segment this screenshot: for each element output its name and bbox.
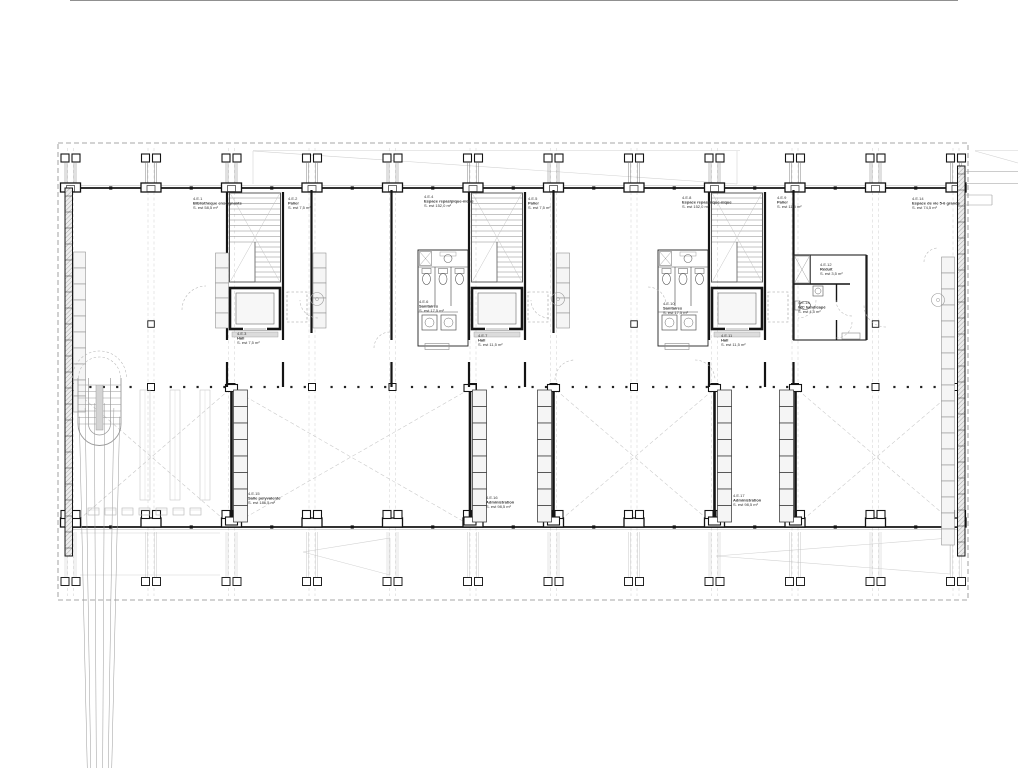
beam-tick <box>853 386 855 388</box>
cabinet-cell <box>942 497 955 513</box>
beam-tick <box>612 386 614 388</box>
column-base <box>302 518 322 527</box>
beam-tick <box>277 386 279 388</box>
column-base-notch <box>872 186 880 192</box>
sink-basin <box>444 318 453 327</box>
column-top <box>464 154 472 162</box>
column-top <box>314 154 322 162</box>
beam-tick <box>438 386 440 388</box>
beam-tick <box>826 386 828 388</box>
cabinet-cell <box>74 380 86 396</box>
cabinet-cell <box>780 407 794 424</box>
column-bottom <box>383 511 391 519</box>
chair <box>122 508 133 515</box>
cabinet-cell <box>473 456 487 473</box>
elevator-door-gap <box>485 327 509 331</box>
column-bottom <box>636 511 644 519</box>
cabinet-cell <box>780 440 794 457</box>
wc-bowl <box>679 274 687 285</box>
cabinet-cell <box>74 268 86 284</box>
column-outer <box>72 578 80 586</box>
cabinet-cell <box>74 252 86 268</box>
room-label-area: S. est 17,5 m² <box>419 308 445 313</box>
column-top <box>877 154 885 162</box>
cabinet-cell <box>718 456 732 473</box>
column-top <box>222 154 230 162</box>
wall-tick <box>914 186 917 189</box>
cabinet-cell <box>780 506 794 523</box>
door-swing-arc <box>695 360 715 380</box>
column-outer <box>222 578 230 586</box>
cabinet-cell <box>942 337 955 353</box>
column-bottom <box>72 511 80 519</box>
wall-tick <box>190 525 193 528</box>
cabinet-cell <box>234 440 248 457</box>
room-label-area: S. est 152,0 m² <box>424 203 452 208</box>
cabinet-cell <box>538 506 552 523</box>
cabinet-cell <box>780 489 794 506</box>
cabinet-cell <box>74 316 86 332</box>
wc-bowl <box>423 274 431 285</box>
column-top <box>72 154 80 162</box>
void-diagonal <box>556 390 713 524</box>
beam-column <box>631 384 638 391</box>
column-top <box>958 154 966 162</box>
cabinet-cell <box>942 449 955 465</box>
canopy-line <box>716 538 950 556</box>
cabinet-cell <box>718 506 732 523</box>
beam-tick <box>424 386 426 388</box>
column-top <box>394 154 402 162</box>
column-bottom <box>877 511 885 519</box>
cabinet-cell <box>942 385 955 401</box>
column-top <box>61 154 69 162</box>
cabinet-cell <box>216 313 229 328</box>
cabinet-cell <box>718 390 732 407</box>
column-top <box>544 154 552 162</box>
wall-tick <box>431 186 434 189</box>
door-swing-arc <box>555 360 575 380</box>
wall-tick <box>834 186 837 189</box>
sink <box>662 315 677 330</box>
cabinet-cell <box>473 390 487 407</box>
floor-plan-page: 4.E.1Bibliothèque enseignantsS. est 58,5… <box>0 0 1024 768</box>
void-diagonal <box>556 390 713 524</box>
room-label-area: S. est 17,5 m² <box>663 310 689 315</box>
room-label-area: S. est 152,0 m² <box>682 204 710 209</box>
cabinet-cell <box>780 390 794 407</box>
wall-tick <box>753 525 756 528</box>
cabinet-cell <box>473 440 487 457</box>
room-label-area: S. est 98,5 m² <box>486 504 512 509</box>
column-outer <box>636 578 644 586</box>
cabinet-cell <box>313 298 326 313</box>
bench <box>842 333 860 339</box>
column-top <box>636 154 644 162</box>
room-label-area: S. est 58,5 m² <box>193 205 219 210</box>
column-top <box>786 154 794 162</box>
column-outer <box>464 578 472 586</box>
stair-tread <box>110 417 120 768</box>
cabinet-cell <box>234 390 248 407</box>
beam-tick <box>907 386 909 388</box>
plan-root: 4.E.1Bibliothèque enseignantsS. est 58,5… <box>58 0 1018 768</box>
column-outer <box>786 578 794 586</box>
stair-tread <box>94 403 97 768</box>
column-top <box>705 154 713 162</box>
roof-line <box>253 151 737 184</box>
column-outer <box>958 578 966 586</box>
column-bottom <box>142 511 150 519</box>
column-base <box>624 518 644 527</box>
cabinet-cell <box>718 473 732 490</box>
column-top <box>866 154 874 162</box>
beam-tick <box>652 386 654 388</box>
sink-basin <box>665 318 674 327</box>
cabinet-cell <box>942 273 955 289</box>
wall-pier <box>631 321 638 328</box>
room-label-area: S. est 11,5 m² <box>721 342 746 347</box>
sink <box>441 315 456 330</box>
cabinet-cell <box>718 489 732 506</box>
beam-tick <box>264 386 266 388</box>
elevator-car <box>718 293 756 324</box>
cabinet-cell <box>538 456 552 473</box>
beam-tick <box>532 386 534 388</box>
chair <box>190 508 201 515</box>
column-bottom <box>394 511 402 519</box>
door-swing-arc <box>924 248 938 262</box>
room-label-area: S. est 186,5 m² <box>248 500 276 505</box>
cabinet-cell <box>313 268 326 283</box>
column-outer <box>625 578 633 586</box>
beam-tick <box>625 386 627 388</box>
fountain-drain <box>936 298 939 301</box>
wall-tick <box>673 525 676 528</box>
wall-tick <box>592 186 595 189</box>
wall-tick <box>512 525 515 528</box>
cabinet-cell <box>942 321 955 337</box>
column-outer <box>866 578 874 586</box>
cabinet-cell <box>74 396 86 412</box>
cabinet-cell <box>216 283 229 298</box>
cabinet-cell <box>942 529 955 545</box>
column-top <box>555 154 563 162</box>
sink <box>813 286 823 296</box>
beam-tick <box>545 386 547 388</box>
column-bottom <box>303 511 311 519</box>
cabinet-cell <box>313 313 326 328</box>
column-bottom <box>314 511 322 519</box>
wc-cistern <box>662 269 671 274</box>
void-diagonal <box>798 390 955 524</box>
cabinet-cell <box>942 401 955 417</box>
wc-cistern <box>679 269 688 274</box>
cabinet-cell <box>74 332 86 348</box>
column-outer <box>544 578 552 586</box>
wall-tick <box>431 525 434 528</box>
beam-tick <box>733 386 735 388</box>
cabinet-cell <box>780 473 794 490</box>
column-base <box>383 518 403 527</box>
roof-line <box>975 151 1018 163</box>
beam-tick <box>371 386 373 388</box>
floor-plan-svg: 4.E.1Bibliothèque enseignantsS. est 58,5… <box>0 0 1024 768</box>
sink-basin <box>425 318 434 327</box>
column-outer <box>475 578 483 586</box>
wc-cistern <box>439 269 448 274</box>
cabinet-cell <box>473 506 487 523</box>
service-rect <box>287 292 307 322</box>
cabinet-cell <box>473 489 487 506</box>
cabinet-cell <box>234 506 248 523</box>
room-label-area: S. est 74,5 m² <box>912 205 938 210</box>
cabinet-cell <box>557 313 570 328</box>
cabinet-cell <box>473 407 487 424</box>
cabinet-cell <box>557 283 570 298</box>
elevator-door-gap <box>725 327 749 331</box>
column-bottom <box>866 511 874 519</box>
column-outer <box>705 578 713 586</box>
beam-tick <box>290 386 292 388</box>
cabinet-cell <box>718 423 732 440</box>
door-swing-arc <box>836 322 852 338</box>
column-outer <box>142 578 150 586</box>
beam-tick <box>197 386 199 388</box>
cabinet-cell <box>538 440 552 457</box>
beam-tick <box>304 386 306 388</box>
beam-tick <box>585 386 587 388</box>
cabinet-cell <box>538 473 552 490</box>
room-label-area: S. est 98,5 m² <box>733 502 759 507</box>
exterior-wall <box>958 166 966 556</box>
wc-bowl <box>663 274 671 285</box>
beam-column <box>872 384 879 391</box>
sanitary-outline <box>658 250 708 346</box>
cabinet-cell <box>313 283 326 298</box>
column-bottom <box>625 511 633 519</box>
cabinet-cell <box>780 423 794 440</box>
column-outer <box>877 578 885 586</box>
column-outer <box>797 578 805 586</box>
wall-tick <box>109 186 112 189</box>
cabinet-cell <box>216 298 229 313</box>
basin <box>444 255 452 263</box>
canopy-line <box>303 538 390 552</box>
void-diagonal <box>798 390 955 524</box>
beam-tick <box>170 386 172 388</box>
basin <box>684 255 692 263</box>
door-swing-arc <box>374 332 390 348</box>
elevator-door-gap <box>243 327 267 331</box>
beam-tick <box>599 386 601 388</box>
cabinet-cell <box>942 305 955 321</box>
wall-tick <box>270 525 273 528</box>
sink <box>681 315 696 330</box>
column-base <box>866 518 886 527</box>
beam-tick <box>183 386 185 388</box>
column-outer <box>233 578 241 586</box>
beam-tick <box>357 386 359 388</box>
cabinet-cell <box>538 489 552 506</box>
room-label-area: S. est 7,5 m² <box>528 205 551 210</box>
chair <box>105 508 116 515</box>
beam-tick <box>867 386 869 388</box>
beam-tick <box>666 386 668 388</box>
column-base-notch <box>228 186 236 192</box>
wall-tick <box>351 186 354 189</box>
cabinet-cell <box>942 481 955 497</box>
cabinet-cell <box>557 253 570 268</box>
wall-tick <box>592 525 595 528</box>
cabinet-cell <box>538 407 552 424</box>
beam-tick <box>344 386 346 388</box>
column-top <box>625 154 633 162</box>
beam-tick <box>89 386 91 388</box>
cabinet-cell <box>557 268 570 283</box>
beam-tick <box>250 386 252 388</box>
canopy-line <box>303 552 390 575</box>
wall-tick <box>512 186 515 189</box>
room-label-area: S. est 11,5 m² <box>478 342 503 347</box>
cabinet-cell <box>942 417 955 433</box>
stair-tread <box>79 417 89 768</box>
beam-tick <box>116 386 118 388</box>
column-top <box>947 154 955 162</box>
column-outer <box>394 578 402 586</box>
wc-bowl <box>696 274 704 285</box>
room-label-area: S. est 7,5 m² <box>288 205 311 210</box>
room-label-area: S. est 7,5 m² <box>237 340 260 345</box>
room-label-area: S. est 3,5 m² <box>820 271 843 276</box>
door-swing-arc <box>182 286 206 310</box>
stair-stringer <box>96 385 103 430</box>
cabinet-cell <box>942 369 955 385</box>
beam-tick <box>331 386 333 388</box>
cabinet-cell <box>942 513 955 529</box>
wall-tick <box>914 525 917 528</box>
beam-tick <box>920 386 922 388</box>
cabinet-cell <box>538 390 552 407</box>
cabinet-cell <box>942 433 955 449</box>
elevator-car <box>236 293 274 324</box>
beam-tick <box>679 386 681 388</box>
column-top <box>475 154 483 162</box>
sink-basin <box>815 288 821 294</box>
wall-pier <box>148 321 155 328</box>
elevator-car <box>478 293 516 324</box>
wc-bowl <box>439 274 447 285</box>
column-top <box>233 154 241 162</box>
wc-cistern <box>422 269 431 274</box>
stair-tread <box>102 403 105 768</box>
column-bottom <box>153 511 161 519</box>
room-label-area: S. est 4,5 m² <box>798 309 821 314</box>
column-top <box>716 154 724 162</box>
cabinet-cell <box>234 456 248 473</box>
cabinet-cell <box>473 423 487 440</box>
column-top <box>383 154 391 162</box>
beam-column <box>148 384 155 391</box>
column-top <box>142 154 150 162</box>
cabinet-cell <box>74 300 86 316</box>
wall-tick <box>673 186 676 189</box>
door-swing-arc <box>836 300 852 316</box>
column-outer <box>314 578 322 586</box>
cabinet-cell <box>473 473 487 490</box>
wall-tick <box>834 525 837 528</box>
cabinet-cell <box>74 348 86 364</box>
cabinet-cell <box>538 423 552 440</box>
beam-tick <box>893 386 895 388</box>
beam-tick <box>411 386 413 388</box>
service-rect <box>768 292 788 322</box>
beam-tick <box>130 386 132 388</box>
beam-tick <box>840 386 842 388</box>
beam-tick <box>210 386 212 388</box>
service-rect <box>528 292 548 322</box>
wall-tick <box>190 186 193 189</box>
chair <box>173 508 184 515</box>
cabinet-cell <box>234 473 248 490</box>
beam-tick <box>706 386 708 388</box>
beam-tick <box>491 386 493 388</box>
sanitary-outline <box>418 250 468 346</box>
column-outer <box>61 578 69 586</box>
beam-tick <box>934 386 936 388</box>
column-outer <box>555 578 563 586</box>
beam-tick <box>813 386 815 388</box>
column-top <box>797 154 805 162</box>
beam-tick <box>518 386 520 388</box>
cabinet-cell <box>942 465 955 481</box>
column-top <box>153 154 161 162</box>
column-outer <box>716 578 724 586</box>
wc-cistern <box>455 269 464 274</box>
column-outer <box>303 578 311 586</box>
cabinet-cell <box>234 423 248 440</box>
beam-tick <box>773 386 775 388</box>
sink-basin <box>684 318 693 327</box>
beam-tick <box>384 386 386 388</box>
cabinet-cell <box>216 253 229 268</box>
door-swing-arc <box>531 300 549 318</box>
wc-cistern <box>695 269 704 274</box>
room-label-area: S. est 11,5 m² <box>777 204 802 209</box>
cabinet-cell <box>216 268 229 283</box>
column-base-notch <box>791 186 799 192</box>
cabinet-cell <box>234 407 248 424</box>
chair <box>88 508 99 515</box>
canopy-line <box>716 556 950 574</box>
wall-tick <box>270 186 273 189</box>
cabinet-cell <box>74 284 86 300</box>
column-base-notch <box>469 186 477 192</box>
cabinet-cell <box>234 489 248 506</box>
wall-tick <box>753 186 756 189</box>
beam-tick <box>572 386 574 388</box>
beam-tick <box>451 386 453 388</box>
beam-tick <box>746 386 748 388</box>
column-base <box>141 518 161 527</box>
cabinet-cell <box>718 407 732 424</box>
column-base-notch <box>147 186 155 192</box>
site-boundary <box>58 143 968 600</box>
shelf <box>680 252 696 256</box>
beam-tick <box>692 386 694 388</box>
column-outer <box>153 578 161 586</box>
cabinet-cell <box>313 253 326 268</box>
